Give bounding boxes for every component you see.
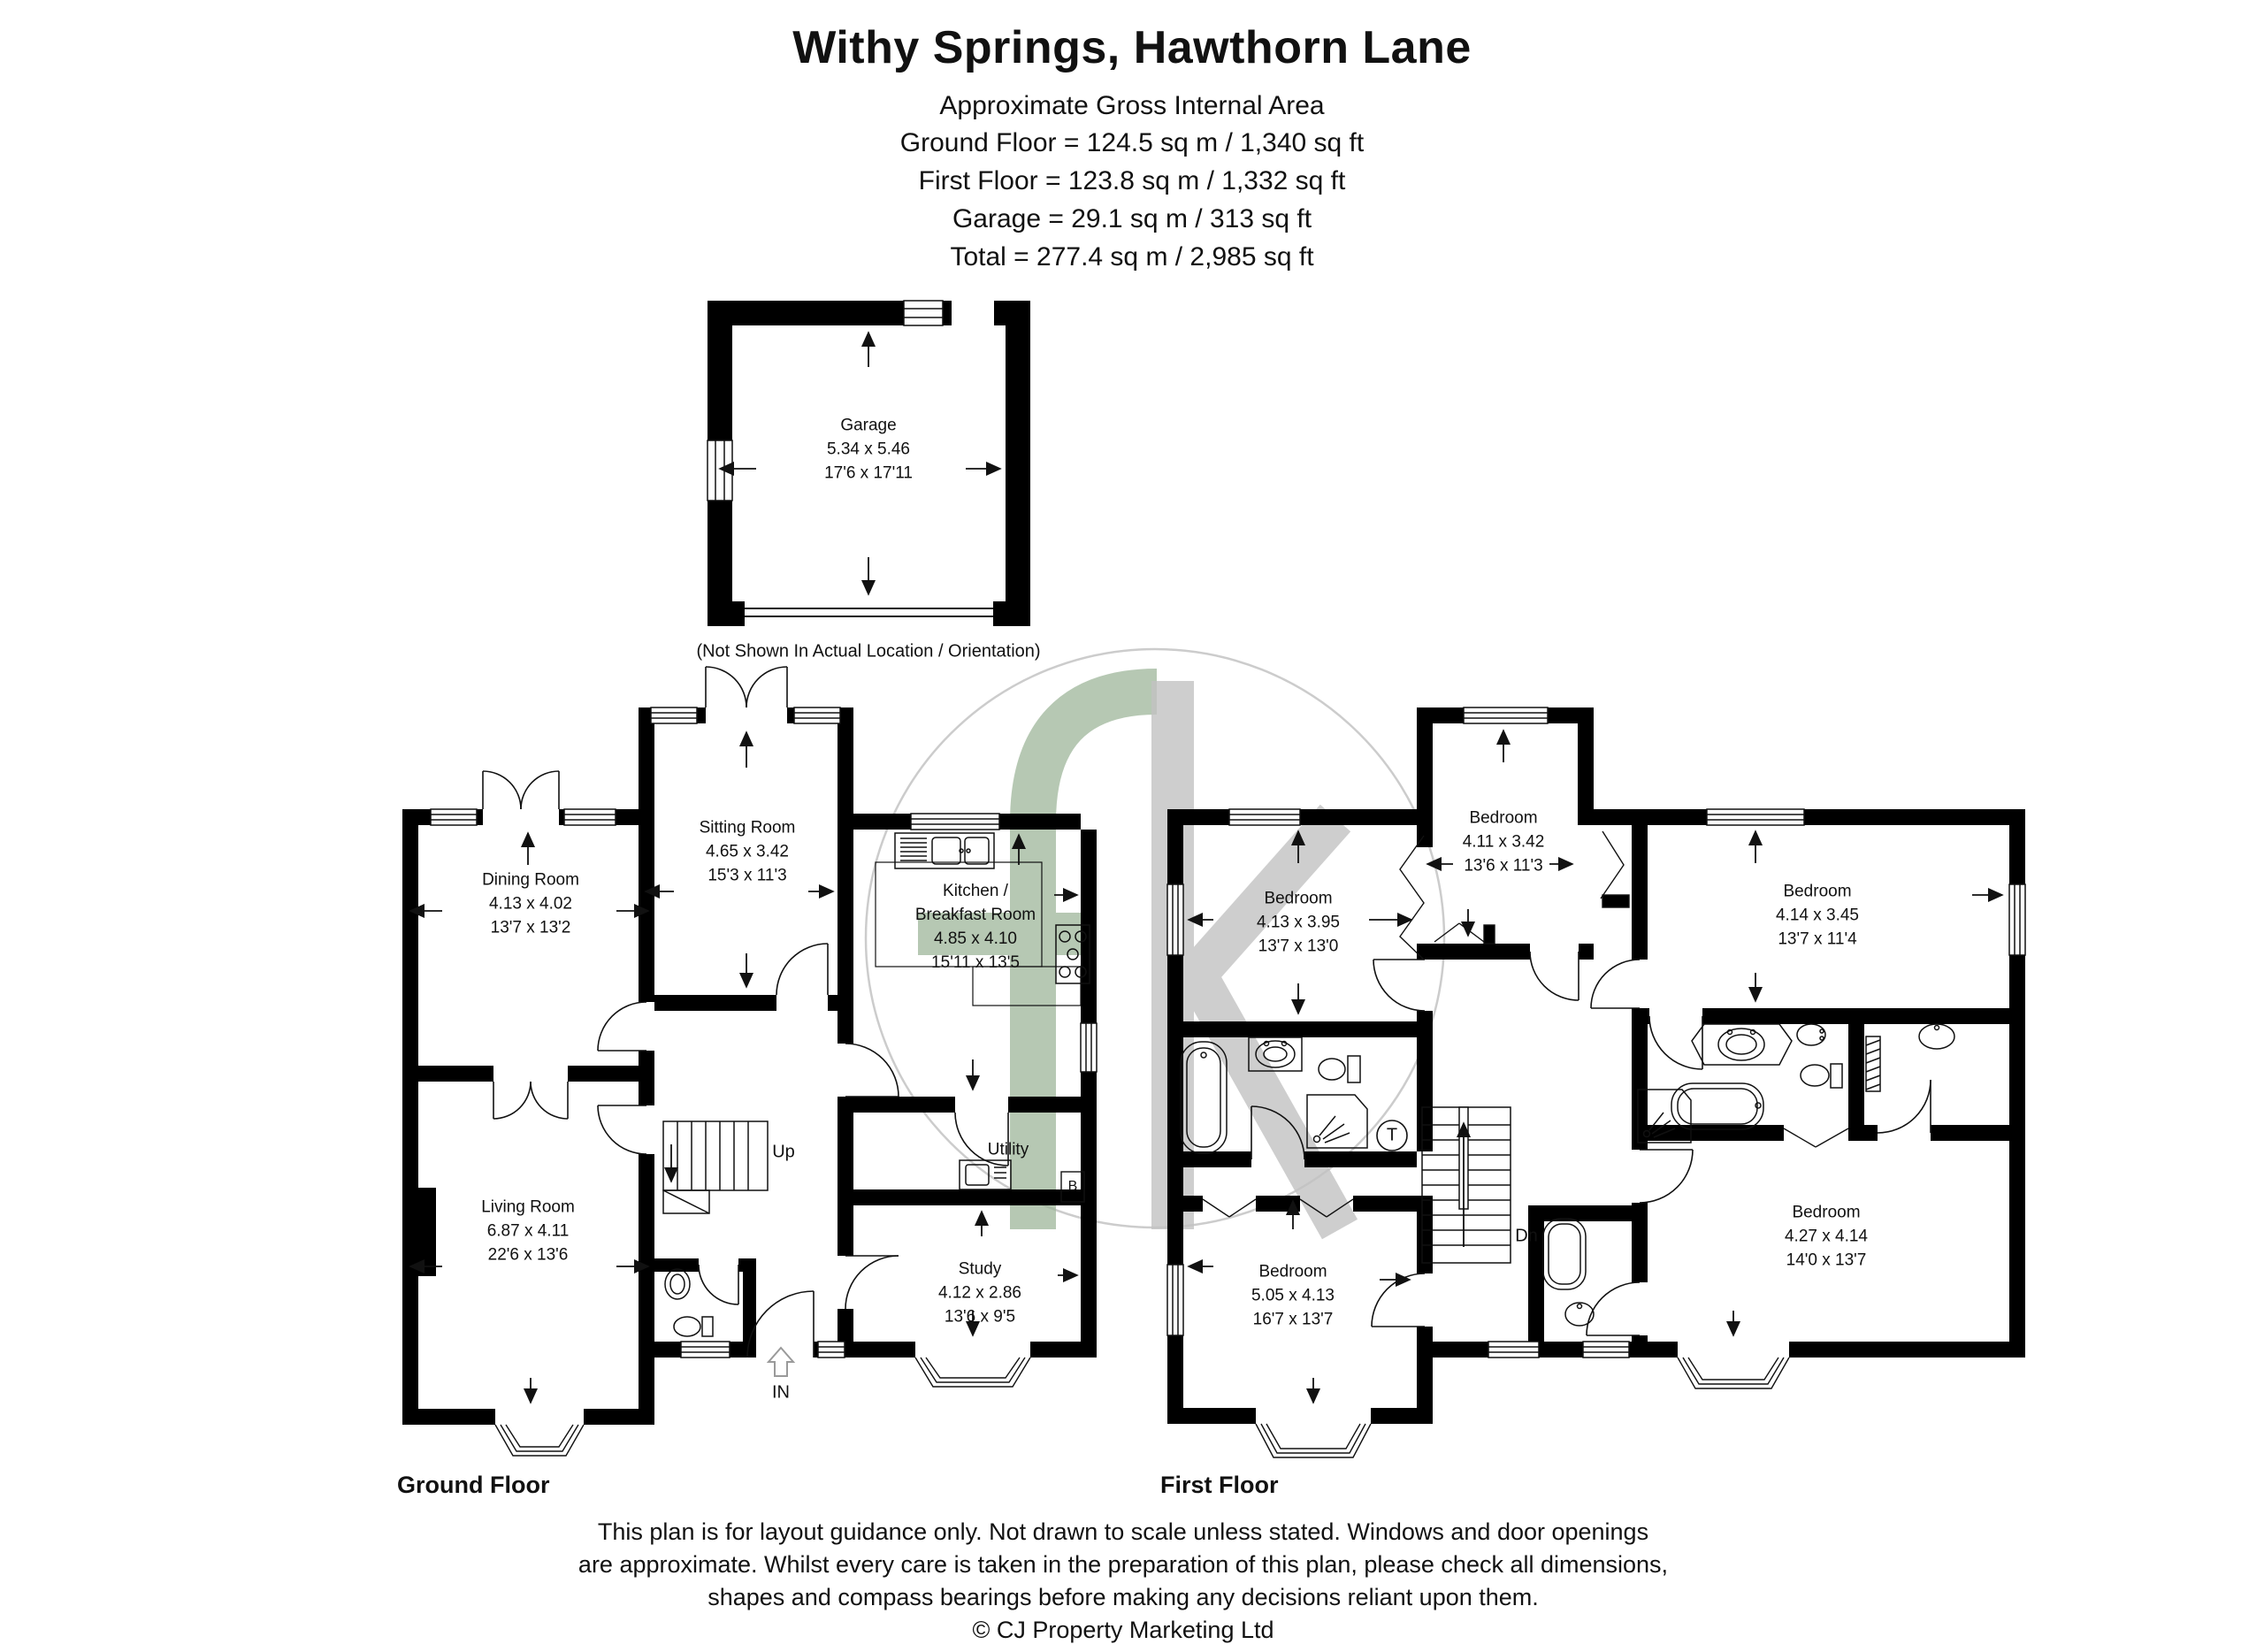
ground-floor-plan xyxy=(402,667,1097,1456)
entrance-label: IN xyxy=(772,1383,790,1403)
basin xyxy=(1718,1029,1764,1060)
toilet xyxy=(1319,1059,1345,1080)
ground-floor-bay-windows xyxy=(495,1358,1030,1456)
area-first-floor: First Floor = 123.8 sq m / 1,332 sq ft xyxy=(0,162,2264,200)
living-room-label: Living Room 6.87 x 4.11 22'6 x 13'6 xyxy=(481,1196,575,1267)
bath xyxy=(1543,1219,1586,1289)
garage-label: Garage 5.34 x 5.46 17'6 x 17'11 xyxy=(824,414,913,486)
bedroom-right-bottom-label: Bedroom 4.27 x 4.14 14'0 x 13'7 xyxy=(1785,1201,1868,1273)
staircase-up xyxy=(663,1121,768,1213)
basin xyxy=(1565,1303,1594,1326)
entrance-arrow-icon xyxy=(769,1348,793,1376)
kitchen-label: Kitchen / Breakfast Room 4.85 x 4.10 15'… xyxy=(915,879,1036,975)
dining-room-label: Dining Room 4.13 x 4.02 13'7 x 13'2 xyxy=(482,868,579,940)
page-title: Withy Springs, Hawthorn Lane xyxy=(0,21,2264,74)
ground-floor-caption: Ground Floor xyxy=(397,1472,549,1499)
first-floor-plan xyxy=(1167,707,2025,1457)
toilet-tank xyxy=(1831,1064,1842,1088)
staircase-down xyxy=(1422,1107,1511,1263)
tank-label: T xyxy=(1387,1126,1397,1146)
disclaimer-line3: shapes and compass bearings before makin… xyxy=(0,1581,2246,1614)
wc-fixtures xyxy=(665,1269,713,1336)
sitting-room-label: Sitting Room 4.65 x 3.42 15'3 x 11'3 xyxy=(700,816,796,888)
stairs-down-label: Dn xyxy=(1515,1227,1538,1247)
bedroom-left-bottom-label: Bedroom 5.05 x 4.13 16'7 x 13'7 xyxy=(1251,1260,1335,1332)
copyright: © CJ Property Marketing Ltd xyxy=(0,1614,2246,1647)
first-floor-bay-windows xyxy=(1256,1358,1789,1457)
area-ground-floor: Ground Floor = 124.5 sq m / 1,340 sq ft xyxy=(0,124,2264,162)
boiler-label: B xyxy=(1068,1179,1078,1195)
toilet xyxy=(1801,1065,1829,1086)
subtitle: Approximate Gross Internal Area xyxy=(0,87,2264,125)
study-label: Study 4.12 x 2.86 13'6 x 9'5 xyxy=(938,1258,1021,1329)
disclaimer-line2: are approximate. Whilst every care is ta… xyxy=(0,1549,2246,1581)
toilet-tank xyxy=(1348,1056,1360,1082)
area-garage: Garage = 29.1 sq m / 313 sq ft xyxy=(0,200,2264,238)
bedroom-top-label: Bedroom 4.11 x 3.42 13'6 x 11'3 xyxy=(1463,807,1545,878)
disclaimer-line1: This plan is for layout guidance only. N… xyxy=(0,1516,2246,1549)
disclaimer: This plan is for layout guidance only. N… xyxy=(0,1516,2246,1647)
utility-label: Utility xyxy=(988,1138,1029,1162)
bidet xyxy=(1797,1024,1825,1045)
bedroom-right-top-label: Bedroom 4.14 x 3.45 13'7 x 11'4 xyxy=(1776,880,1859,952)
area-total: Total = 277.4 sq m / 2,985 sq ft xyxy=(0,238,2264,276)
garage-note: (Not Shown In Actual Location / Orientat… xyxy=(696,642,1040,662)
basin-counter xyxy=(1692,1024,1792,1065)
bedroom-left-label: Bedroom 4.13 x 3.95 13'7 x 13'0 xyxy=(1257,887,1340,959)
floorplan-page: Withy Springs, Hawthorn Lane Approximate… xyxy=(0,0,2264,1652)
ensuite-basin xyxy=(1919,1024,1954,1049)
garage-door xyxy=(745,608,993,616)
first-floor-caption: First Floor xyxy=(1160,1472,1279,1499)
ensuite-fixtures xyxy=(1543,1219,1594,1326)
stairs-up-label: Up xyxy=(772,1143,795,1163)
shower xyxy=(1307,1095,1367,1148)
